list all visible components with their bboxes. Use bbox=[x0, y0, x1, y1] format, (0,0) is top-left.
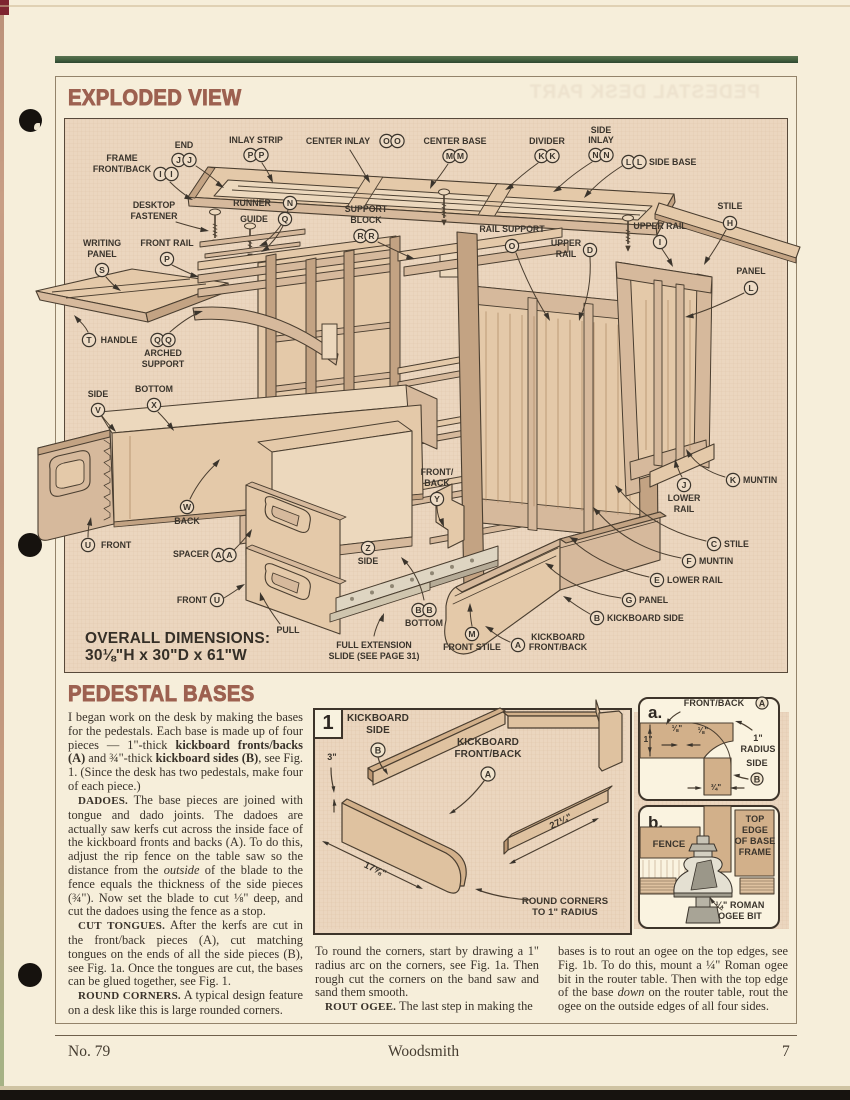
svg-text:1": 1" bbox=[644, 734, 653, 744]
svg-text:3": 3" bbox=[327, 752, 336, 762]
svg-text:B: B bbox=[375, 745, 382, 755]
svg-text:A: A bbox=[485, 769, 492, 779]
svg-text:a.: a. bbox=[648, 703, 662, 722]
svg-text:¼" ROMAN: ¼" ROMAN bbox=[715, 900, 764, 910]
svg-text:RADIUS: RADIUS bbox=[740, 744, 775, 754]
svg-text:FRONT/BACK: FRONT/BACK bbox=[454, 749, 522, 760]
svg-text:SIDE: SIDE bbox=[366, 725, 390, 736]
svg-text:B: B bbox=[754, 774, 761, 784]
svg-text:17⅝": 17⅝" bbox=[362, 860, 388, 880]
svg-text:OGEE BIT: OGEE BIT bbox=[718, 911, 762, 921]
svg-text:¾": ¾" bbox=[711, 783, 722, 792]
svg-text:EDGE: EDGE bbox=[742, 825, 768, 835]
svg-text:⅛": ⅛" bbox=[672, 724, 683, 733]
svg-text:⅛": ⅛" bbox=[698, 726, 709, 735]
svg-text:FRONT/BACK: FRONT/BACK bbox=[684, 698, 745, 708]
svg-text:TOP: TOP bbox=[746, 814, 765, 824]
svg-text:1": 1" bbox=[753, 733, 762, 743]
svg-text:OF BASE: OF BASE bbox=[735, 836, 776, 846]
svg-text:KICKBOARD: KICKBOARD bbox=[457, 737, 519, 748]
svg-text:A: A bbox=[759, 698, 766, 708]
svg-text:TO 1" RADIUS: TO 1" RADIUS bbox=[532, 907, 598, 918]
svg-text:FENCE: FENCE bbox=[653, 839, 686, 850]
svg-text:KICKBOARD: KICKBOARD bbox=[347, 713, 409, 724]
svg-text:SIDE: SIDE bbox=[746, 758, 767, 768]
svg-text:ROUND CORNERS: ROUND CORNERS bbox=[522, 896, 608, 907]
svg-text:FRAME: FRAME bbox=[739, 847, 772, 857]
